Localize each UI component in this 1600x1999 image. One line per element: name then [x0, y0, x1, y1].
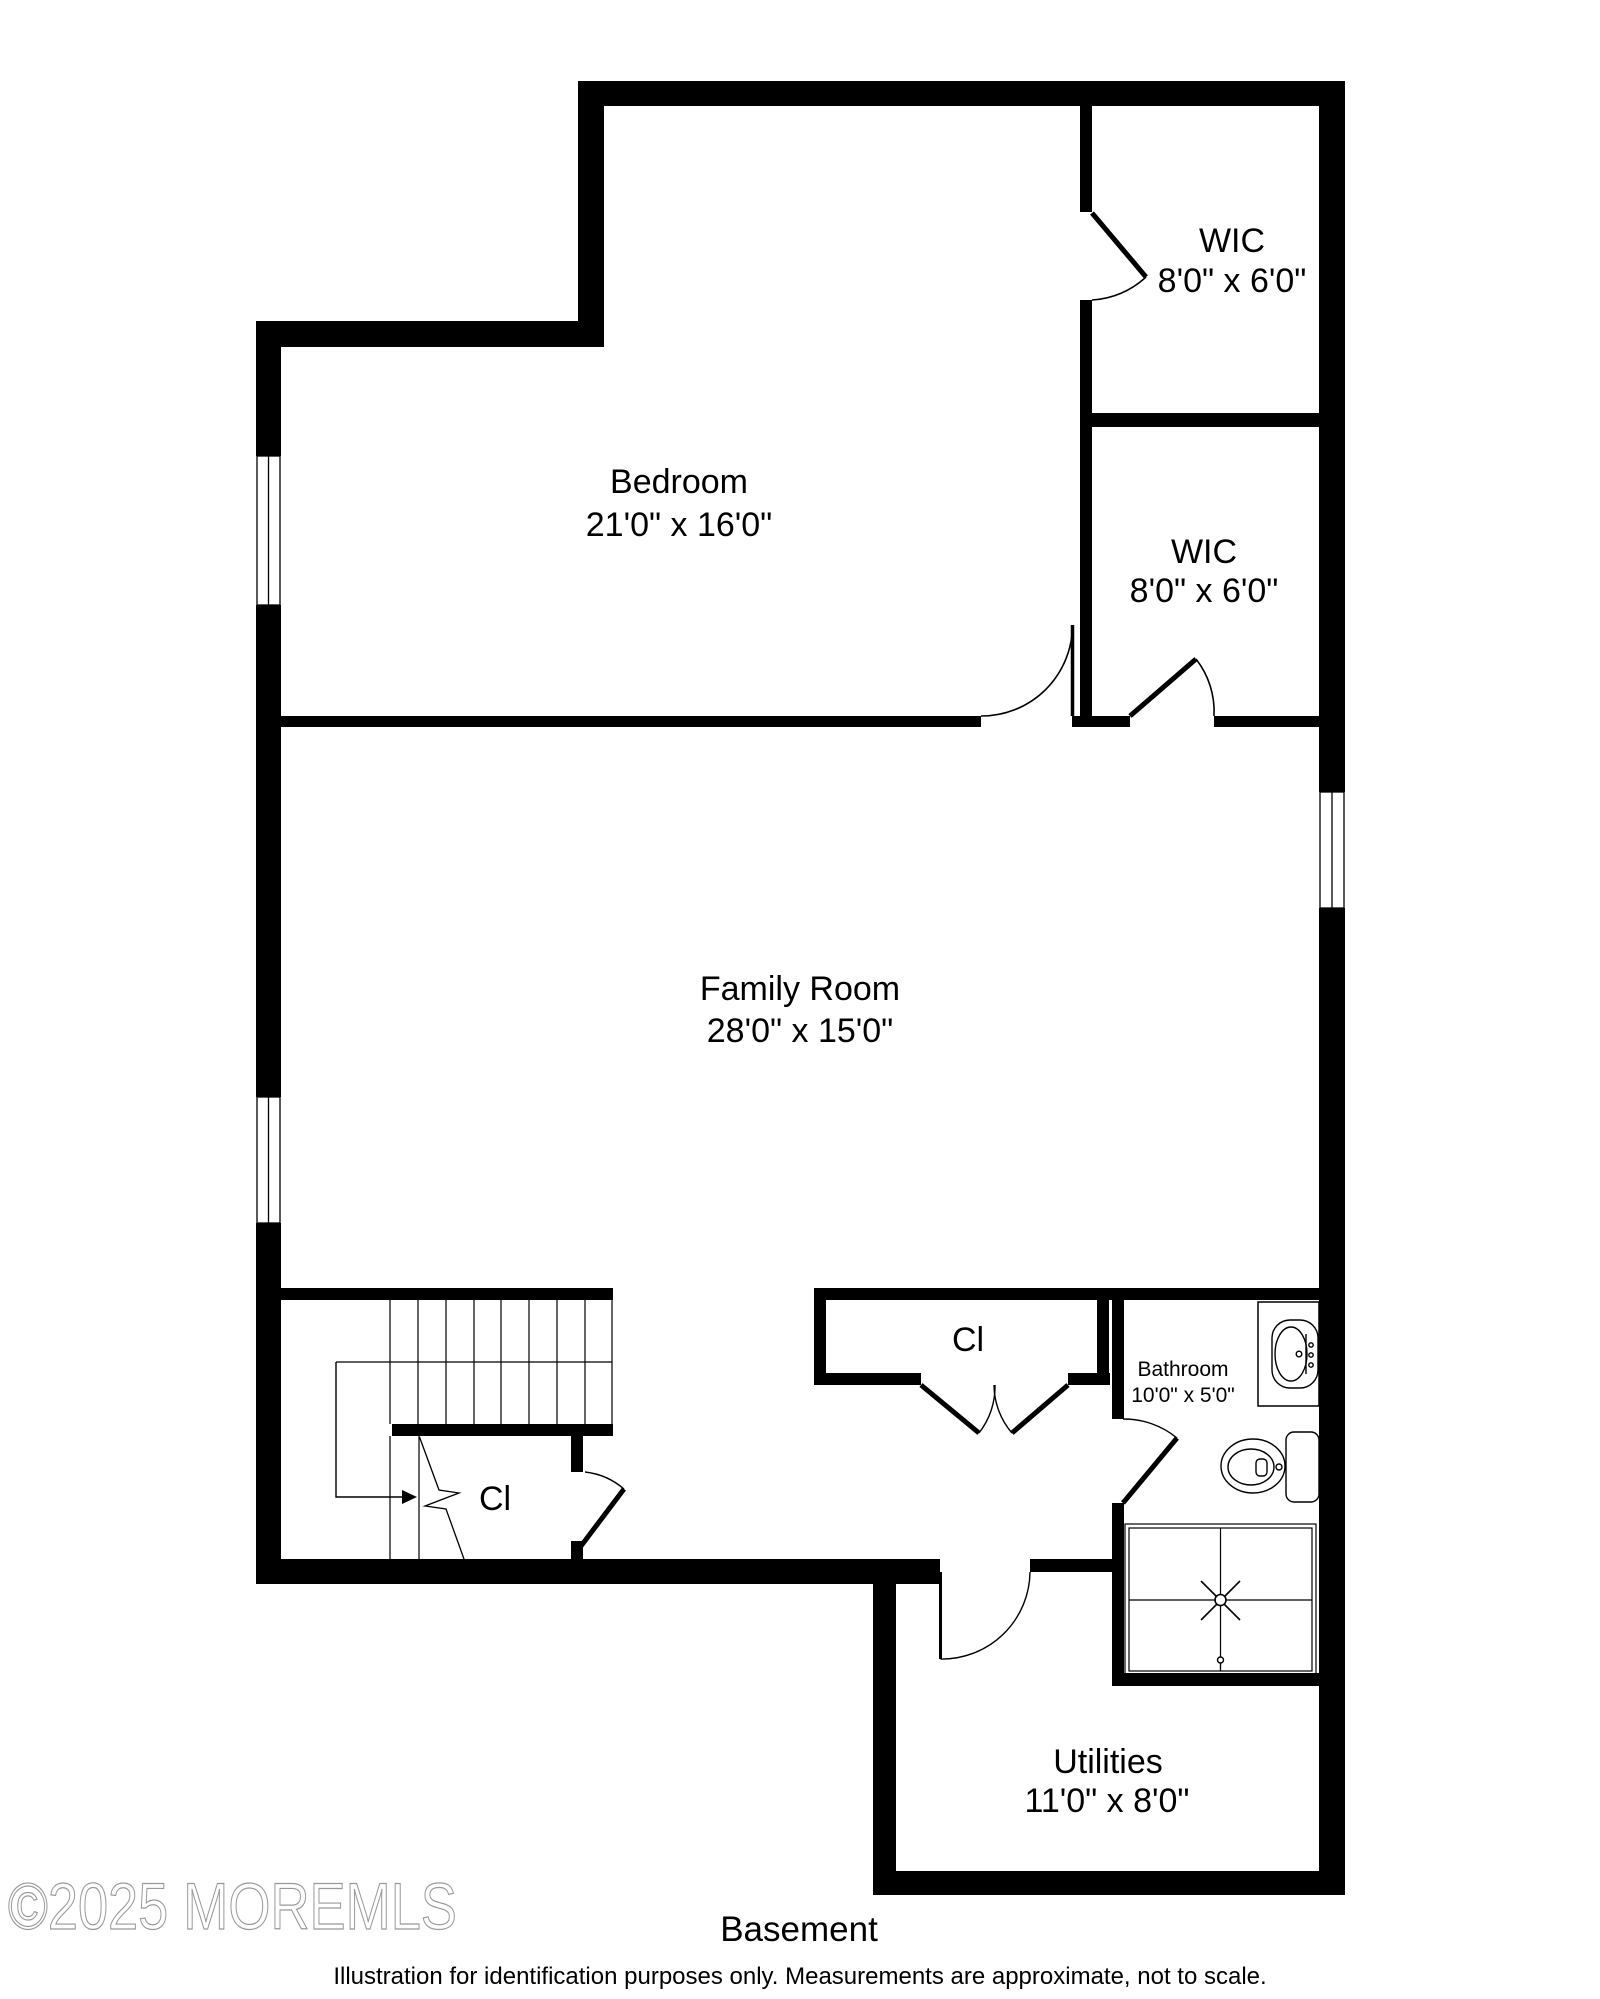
svg-text:Bedroom: Bedroom [610, 463, 748, 501]
svg-text:10'0" x 5'0": 10'0" x 5'0" [1131, 1384, 1235, 1407]
svg-text:Bathroom: Bathroom [1137, 1358, 1228, 1381]
svg-text:28'0" x 15'0": 28'0" x 15'0" [707, 1012, 893, 1050]
svg-text:21'0" x 16'0": 21'0" x 16'0" [586, 506, 772, 544]
svg-text:©2025 MOREMLS: ©2025 MOREMLS [8, 1869, 457, 1943]
svg-text:11'0" x 8'0": 11'0" x 8'0" [1024, 1782, 1189, 1820]
svg-text:Utilities: Utilities [1053, 1743, 1163, 1781]
svg-text:Basement: Basement [720, 1910, 878, 1949]
svg-text:Illustration for identificatio: Illustration for identification purposes… [333, 1963, 1266, 1990]
svg-text:8'0" x 6'0": 8'0" x 6'0" [1158, 262, 1307, 300]
svg-text:WIC: WIC [1171, 533, 1237, 571]
svg-text:Cl: Cl [952, 1321, 984, 1359]
svg-text:Family Room: Family Room [700, 970, 900, 1008]
svg-text:8'0" x 6'0": 8'0" x 6'0" [1130, 572, 1279, 610]
svg-text:WIC: WIC [1199, 222, 1265, 260]
svg-text:Cl: Cl [479, 1480, 511, 1518]
